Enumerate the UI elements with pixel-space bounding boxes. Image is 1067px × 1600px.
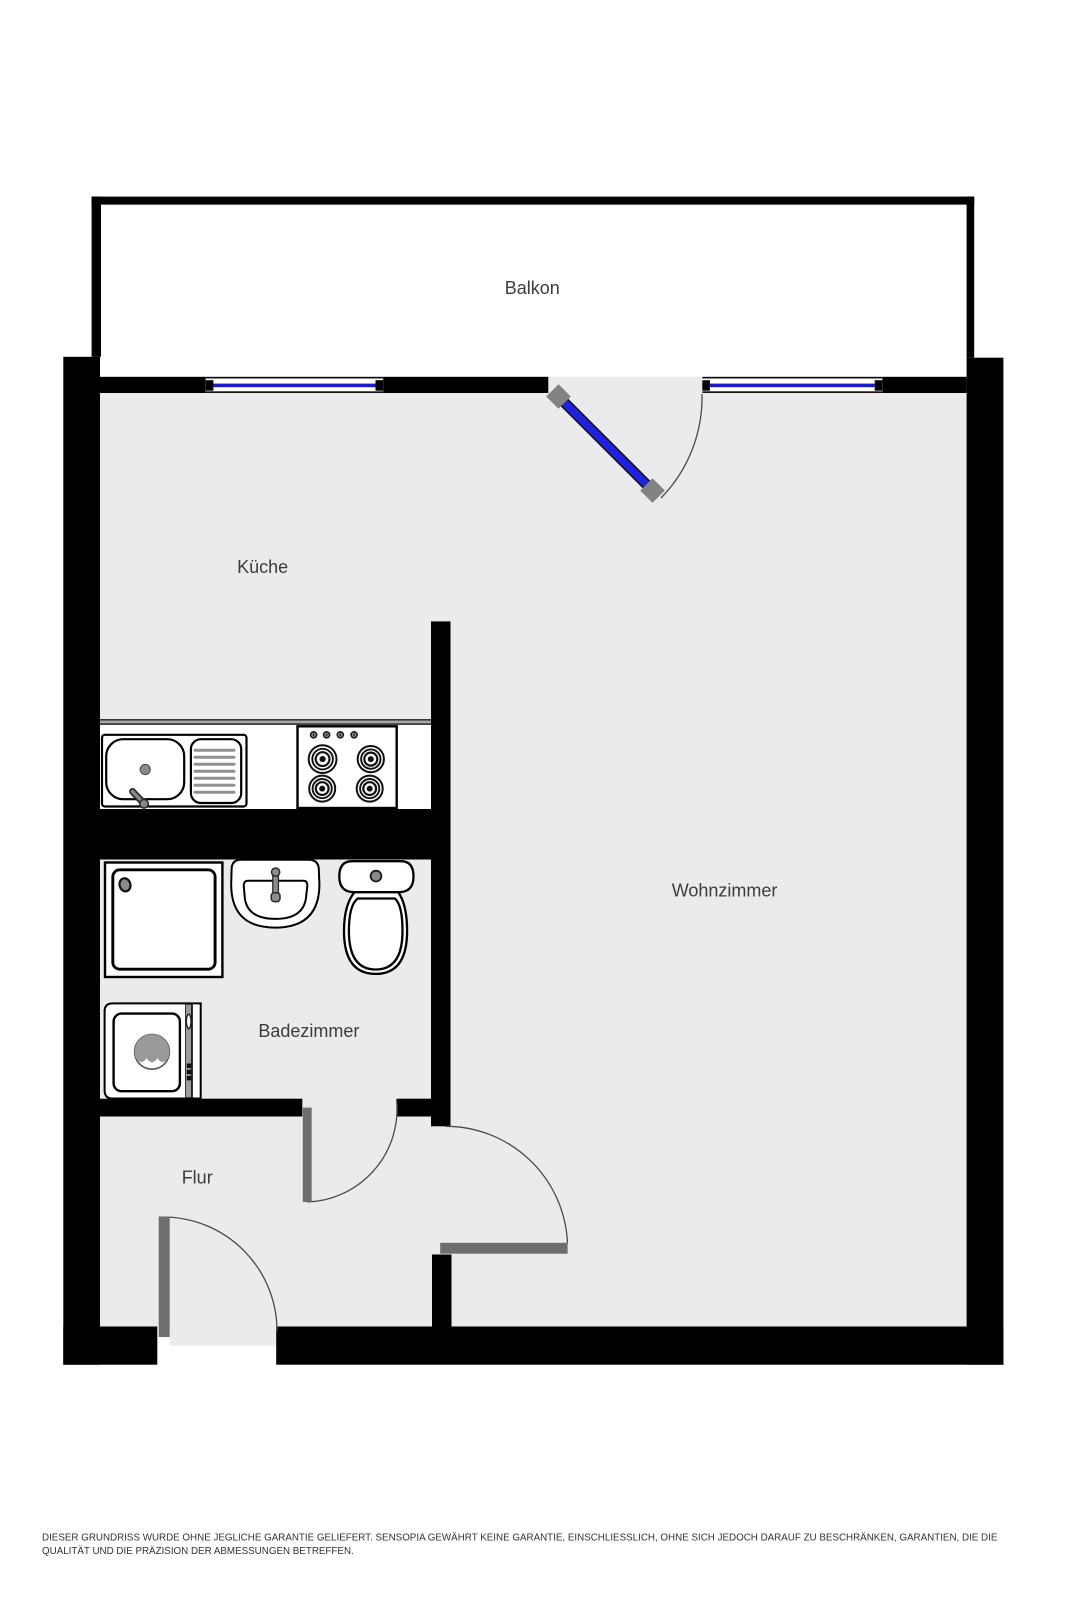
svg-text:Wohnzimmer: Wohnzimmer: [672, 880, 778, 900]
svg-text:QUALITÄT UND DIE PRÄZISION DER: QUALITÄT UND DIE PRÄZISION DER ABMESSUNG…: [42, 1546, 354, 1557]
svg-text:Badezimmer: Badezimmer: [258, 1021, 359, 1041]
svg-text:Küche: Küche: [237, 557, 288, 577]
svg-text:Flur: Flur: [182, 1168, 213, 1188]
svg-text:Balkon: Balkon: [505, 278, 560, 298]
svg-text:DIESER GRUNDRISS WURDE OHNE JE: DIESER GRUNDRISS WURDE OHNE JEGLICHE GAR…: [42, 1532, 998, 1543]
